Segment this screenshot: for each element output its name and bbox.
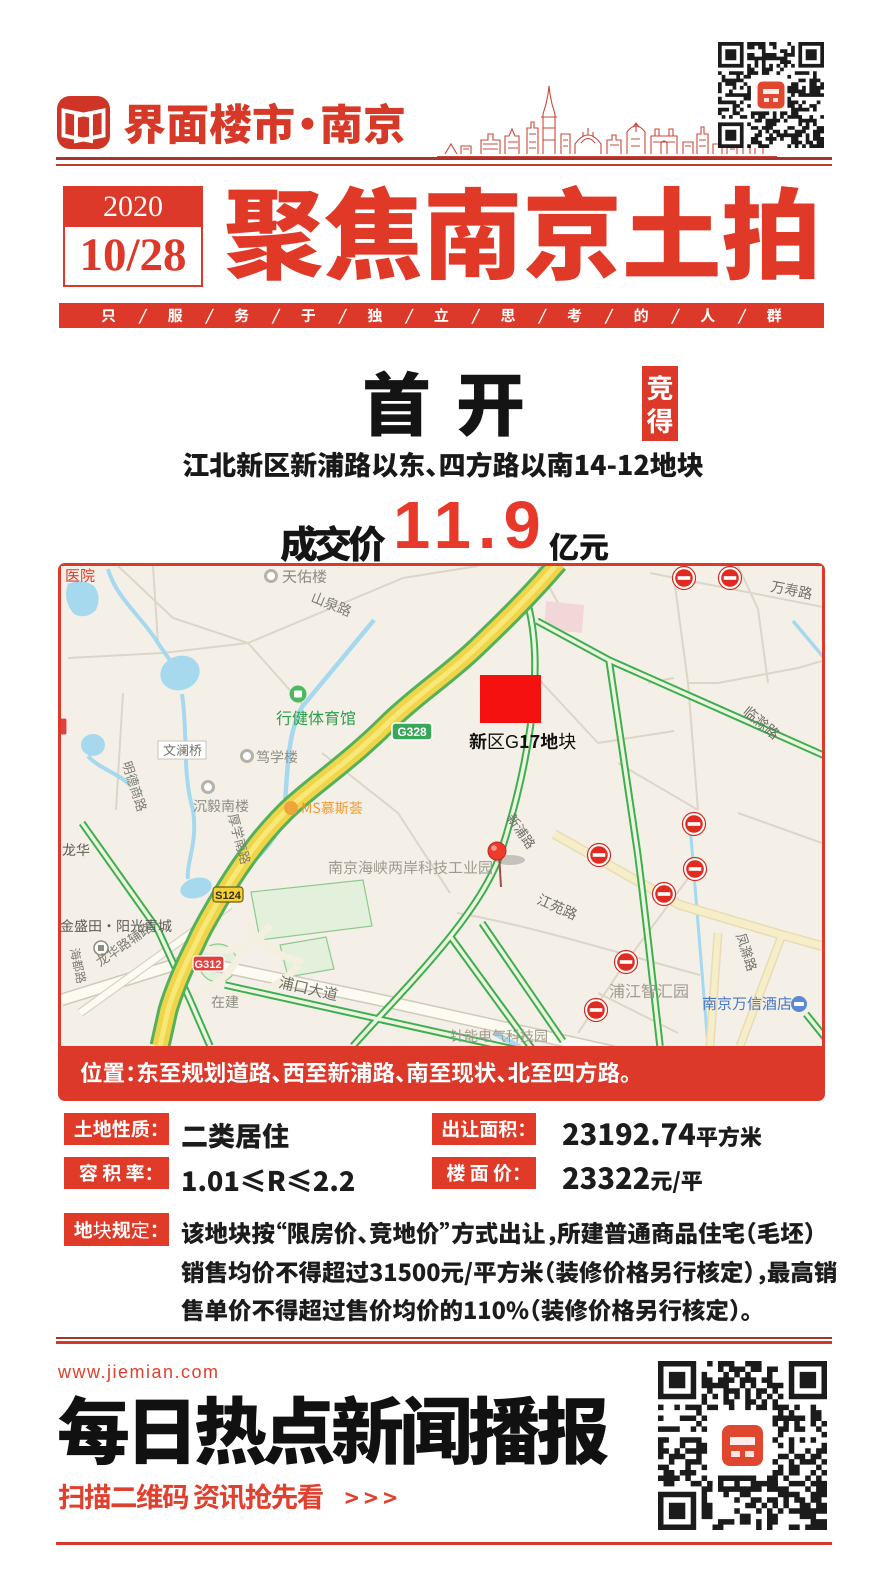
svg-text:G312: G312	[195, 959, 222, 971]
svg-text:G328: G328	[397, 725, 427, 739]
svg-text:文澜桥: 文澜桥	[163, 740, 202, 759]
svg-text:笃学楼: 笃学楼	[256, 747, 298, 767]
svg-text:在建: 在建	[211, 992, 239, 1012]
svg-text:南京万信酒店: 南京万信酒店	[702, 993, 792, 1014]
svg-text:龙华: 龙华	[62, 840, 90, 860]
svg-text:新区G17地块: 新区G17地块	[469, 728, 576, 754]
svg-text:浦江智汇园: 浦江智汇园	[609, 978, 689, 1002]
svg-text:S124: S124	[215, 890, 242, 902]
svg-text:行健体育馆: 行健体育馆	[276, 705, 356, 729]
svg-text:MS慕斯荟: MS慕斯荟	[301, 798, 363, 818]
svg-text:针能电气科技园: 针能电气科技园	[450, 1026, 548, 1046]
svg-text:南京海峡两岸科技工业园: 南京海峡两岸科技工业园	[328, 857, 493, 878]
svg-text:医院: 医院	[65, 566, 95, 586]
svg-text:天佑楼: 天佑楼	[282, 566, 327, 587]
